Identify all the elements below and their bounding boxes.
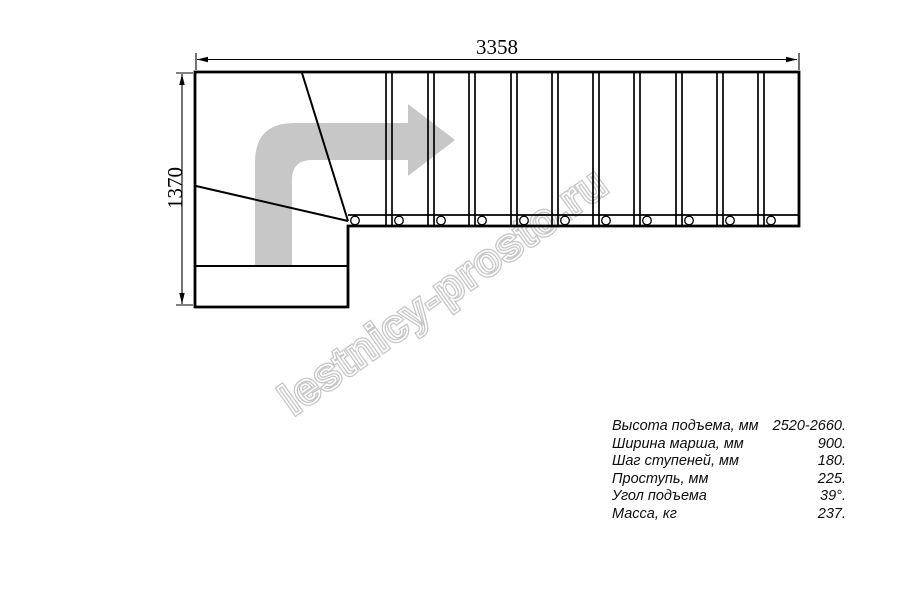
dim-height-label: 1370 <box>163 167 187 209</box>
spec-row: Высота подъема, мм 2520-2660. <box>612 418 846 436</box>
baluster-circle <box>726 216 735 225</box>
baluster-circle <box>685 216 694 225</box>
baluster-circles <box>351 216 776 225</box>
spec-row: Ширина марша, мм 900. <box>612 436 846 454</box>
baluster-circle <box>437 216 446 225</box>
spec-label: Высота подъема, мм <box>612 418 759 436</box>
baluster-circle <box>561 216 570 225</box>
dim-arrowhead-bottom <box>179 293 184 304</box>
baluster-circle <box>351 216 360 225</box>
baluster-circle <box>395 216 404 225</box>
stair-plan-canvas: lestnicy-prosto.ru lestnicy-prosto.ru <box>0 0 900 600</box>
dim-arrowhead-left <box>197 57 208 62</box>
spec-row: Угол подъема 39°. <box>612 488 846 506</box>
direction-arrow-icon <box>255 104 455 266</box>
baluster-circle <box>520 216 529 225</box>
dim-arrowhead-right <box>786 57 797 62</box>
spec-value: 225. <box>818 471 846 489</box>
dim-arrowhead-top <box>179 74 184 85</box>
spec-row: Шаг ступеней, мм 180. <box>612 453 846 471</box>
spec-value: 39°. <box>820 488 846 506</box>
baluster-circle <box>767 216 776 225</box>
baluster-circle <box>643 216 652 225</box>
baluster-circle <box>602 216 611 225</box>
spec-label: Масса, кг <box>612 506 677 524</box>
spec-value: 900. <box>818 436 846 454</box>
baluster-circle <box>478 216 487 225</box>
spec-label: Проступь, мм <box>612 471 708 489</box>
spec-label: Шаг ступеней, мм <box>612 453 739 471</box>
spec-row: Масса, кг 237. <box>612 506 846 524</box>
spec-value: 2520-2660. <box>773 418 846 436</box>
watermark-text: lestnicy-prosto.ru lestnicy-prosto.ru <box>271 158 617 424</box>
spec-value: 237. <box>818 506 846 524</box>
spec-table: Высота подъема, мм 2520-2660. Ширина мар… <box>612 418 846 524</box>
spec-row: Проступь, мм 225. <box>612 471 846 489</box>
watermark-core: lestnicy-prosto.ru <box>271 158 617 424</box>
spec-label: Угол подъема <box>612 488 707 506</box>
spec-label: Ширина марша, мм <box>612 436 744 454</box>
spec-value: 180. <box>818 453 846 471</box>
dim-width-label: 3358 <box>476 35 518 59</box>
